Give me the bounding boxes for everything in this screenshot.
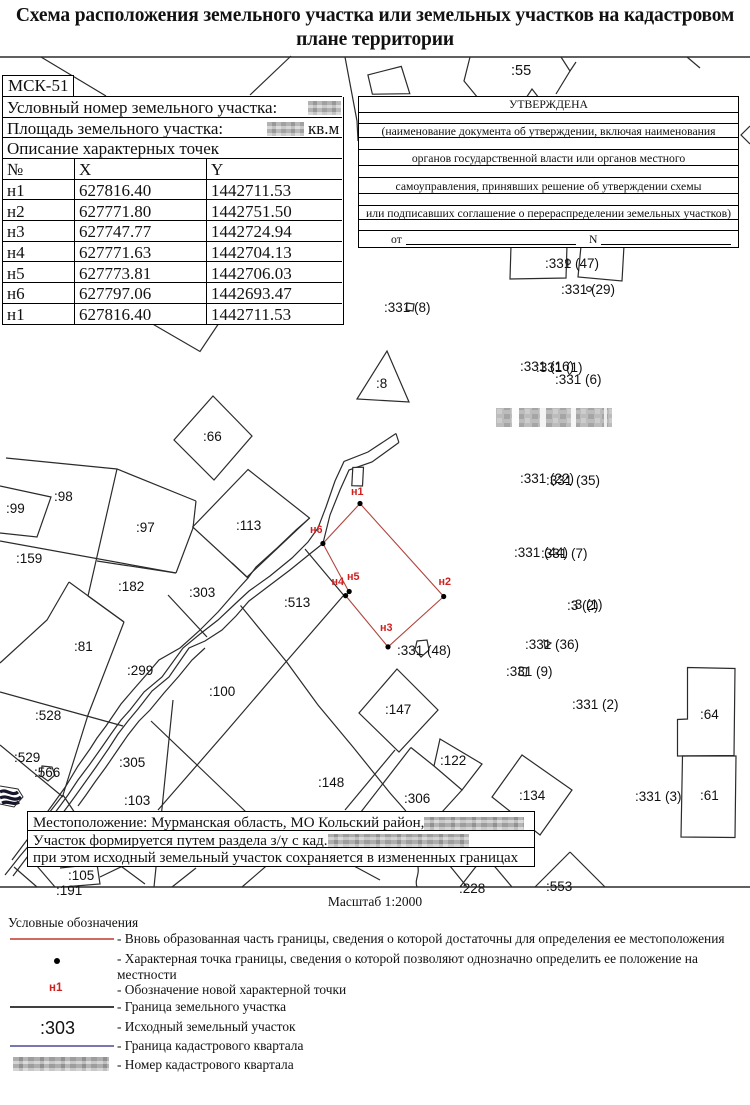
svg-text::566: :566 — [34, 765, 60, 780]
svg-text::331 (6): :331 (6) — [555, 372, 602, 387]
svg-text::61: :61 — [700, 788, 719, 803]
svg-text::55: :55 — [511, 63, 531, 79]
svg-text::331 (47): :331 (47) — [545, 256, 599, 271]
svg-text::147: :147 — [385, 702, 411, 717]
svg-text::122: :122 — [440, 753, 466, 768]
svg-text::306: :306 — [404, 791, 430, 806]
svg-text::513: :513 — [284, 595, 310, 610]
svg-text:н3: н3 — [380, 622, 393, 634]
svg-text::303: :303 — [189, 585, 215, 600]
svg-text::331 (9): :331 (9) — [506, 664, 553, 679]
svg-text::100: :100 — [209, 684, 235, 699]
svg-text::331 (7): :331 (7) — [541, 546, 588, 561]
svg-text::331 (3): :331 (3) — [635, 789, 682, 804]
svg-text::105: :105 — [68, 868, 94, 883]
svg-text::331 (36): :331 (36) — [525, 637, 579, 652]
svg-text::81: :81 — [74, 639, 93, 654]
svg-text::3 (1): :3 (1) — [571, 597, 603, 612]
svg-text::331 (29): :331 (29) — [561, 282, 615, 297]
svg-text::331 (2): :331 (2) — [572, 697, 619, 712]
svg-text::99: :99 — [6, 501, 25, 516]
svg-text::159: :159 — [16, 551, 42, 566]
svg-text::331 (8): :331 (8) — [384, 300, 431, 315]
svg-text::528: :528 — [35, 708, 61, 723]
svg-text::113: :113 — [236, 518, 261, 533]
svg-text:н5: н5 — [347, 571, 360, 583]
svg-text::305: :305 — [119, 755, 145, 770]
svg-text::64: :64 — [700, 707, 719, 722]
svg-text::299: :299 — [127, 663, 153, 678]
svg-text::98: :98 — [54, 489, 73, 504]
svg-text::103: :103 — [124, 793, 150, 808]
svg-text:н1: н1 — [351, 486, 364, 498]
svg-text::529: :529 — [14, 750, 40, 765]
svg-text::331 (35): :331 (35) — [546, 473, 600, 488]
svg-text::8: :8 — [376, 376, 387, 391]
svg-text:н2: н2 — [439, 576, 452, 588]
svg-text::134: :134 — [519, 788, 546, 803]
svg-text::148: :148 — [318, 775, 344, 790]
svg-text::97: :97 — [136, 520, 155, 535]
svg-text::182: :182 — [118, 579, 144, 594]
svg-text::553: :553 — [546, 879, 572, 894]
svg-text:н6: н6 — [310, 524, 323, 536]
svg-text:н4: н4 — [332, 576, 345, 588]
svg-text::331 (48): :331 (48) — [397, 643, 451, 658]
svg-text::66: :66 — [203, 429, 222, 444]
